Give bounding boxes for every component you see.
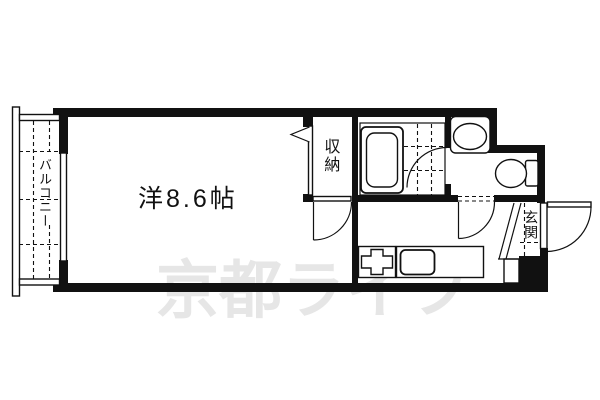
entrance-doorway [541,203,548,249]
main-room-door-arc [314,202,352,240]
wall-interior-south-b [494,195,545,202]
closet-label: 収納 [320,138,338,174]
wall-step-horizontal [488,145,545,153]
wall-top [53,108,497,117]
washbasin-bowl [454,124,487,150]
bathtub-inner-rim [367,133,398,187]
wall-west-lower [59,260,68,292]
entrance-step-floor [504,259,519,283]
wall-closet-bath-divider [352,108,358,285]
wall-west-upper [59,108,68,154]
balcony-bottom-edge [20,279,60,285]
washroom-door-arc [459,202,495,239]
main-room-label: 洋8.6帖 [138,185,238,214]
sliding-window [61,153,67,261]
floor-plan-canvas: 京都ライフ [0,0,600,400]
entrance-step-diagonal-1 [506,203,521,259]
entrance-door-panel [548,202,592,207]
wall-bottom [53,283,548,292]
balcony-top-edge [20,115,60,121]
wall-interior-south-a [358,195,458,202]
entrance-door-arc [547,207,591,252]
wall-closet-pillar-top [303,108,313,127]
entrance-label: 玄関 [523,210,539,240]
balcony-label: バルコニー [36,158,51,228]
floor-plan-drawing [0,0,600,400]
bath-door-arc [407,148,447,188]
toilet-bowl [496,160,527,188]
main-room-door-opening [313,197,351,202]
balcony-outer-rail [13,107,20,296]
entrance-step-diagonal-2 [499,203,514,259]
toilet-tank [526,161,539,187]
kitchen-sink [401,250,435,275]
wall-corner-mass [519,256,548,286]
closet-folding-door-icon [291,127,310,142]
